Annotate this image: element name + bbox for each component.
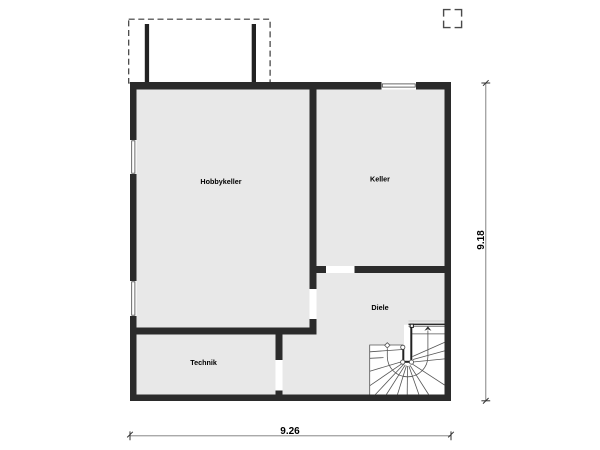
svg-text:9.18: 9.18 bbox=[476, 230, 487, 250]
svg-text:Hobbykeller: Hobbykeller bbox=[200, 177, 241, 186]
svg-text:Technik: Technik bbox=[190, 358, 217, 367]
svg-text:Keller: Keller bbox=[370, 174, 390, 183]
svg-text:Diele: Diele bbox=[371, 303, 388, 312]
svg-text:9.26: 9.26 bbox=[280, 426, 300, 437]
